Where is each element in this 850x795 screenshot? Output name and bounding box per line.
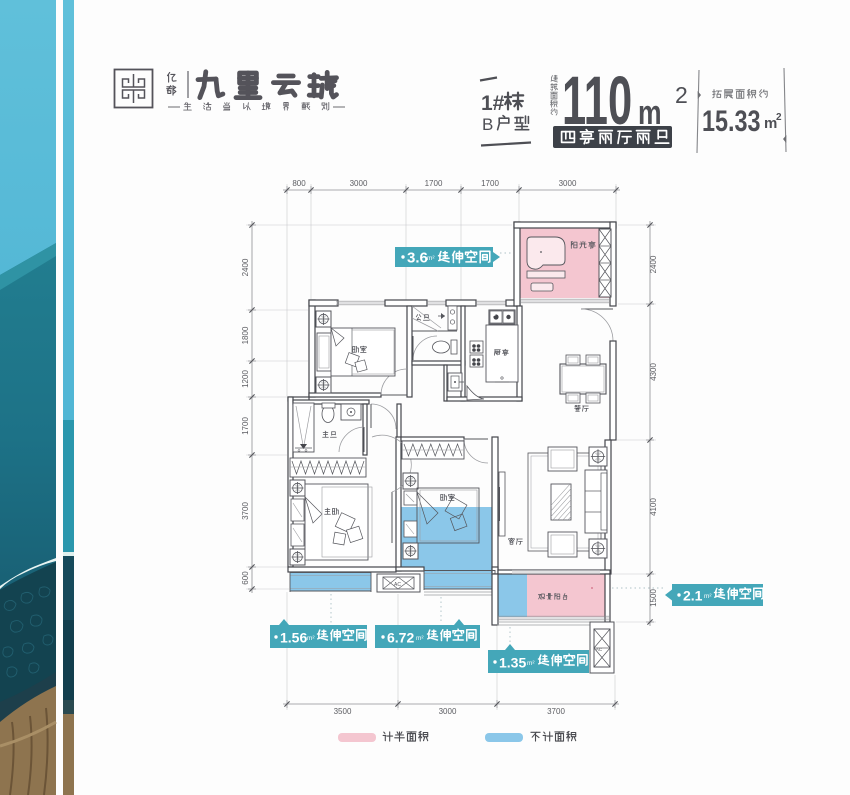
svg-text:m²: m²: [427, 255, 435, 262]
svg-text:m²: m²: [416, 635, 424, 642]
svg-text:4300: 4300: [649, 363, 658, 381]
svg-text:m²: m²: [307, 635, 315, 642]
svg-text:2: 2: [776, 112, 782, 123]
svg-text:1200: 1200: [241, 370, 250, 388]
svg-text:1.35: 1.35: [499, 655, 526, 671]
svg-text:AC: AC: [596, 647, 603, 652]
svg-text:800: 800: [292, 179, 306, 188]
svg-text:2: 2: [675, 82, 688, 108]
svg-text:m²: m²: [527, 660, 535, 667]
svg-text:1700: 1700: [241, 417, 250, 435]
svg-text:m²: m²: [704, 593, 712, 600]
svg-text:3.6: 3.6: [407, 250, 428, 267]
svg-text:3700: 3700: [241, 502, 250, 520]
svg-text:3500: 3500: [334, 707, 352, 716]
svg-text:1800: 1800: [241, 326, 250, 344]
svg-text:600: 600: [241, 571, 250, 585]
svg-text:1700: 1700: [481, 179, 499, 188]
svg-text:1500: 1500: [649, 589, 658, 607]
svg-text:3000: 3000: [559, 179, 577, 188]
svg-text:1700: 1700: [425, 179, 443, 188]
svg-text:AC: AC: [394, 582, 401, 588]
svg-text:2400: 2400: [241, 258, 250, 276]
svg-text:3000: 3000: [439, 707, 457, 716]
svg-text:2400: 2400: [649, 255, 658, 273]
svg-text:3000: 3000: [350, 179, 368, 188]
svg-text:15.33: 15.33: [702, 104, 761, 137]
svg-text:6.72: 6.72: [387, 630, 414, 646]
svg-text:2.1: 2.1: [683, 588, 703, 604]
svg-text:1.56: 1.56: [280, 630, 307, 646]
svg-text:4100: 4100: [649, 498, 658, 516]
svg-text:B: B: [482, 115, 493, 134]
svg-text:1#: 1#: [481, 92, 505, 115]
svg-text:3700: 3700: [547, 707, 565, 716]
